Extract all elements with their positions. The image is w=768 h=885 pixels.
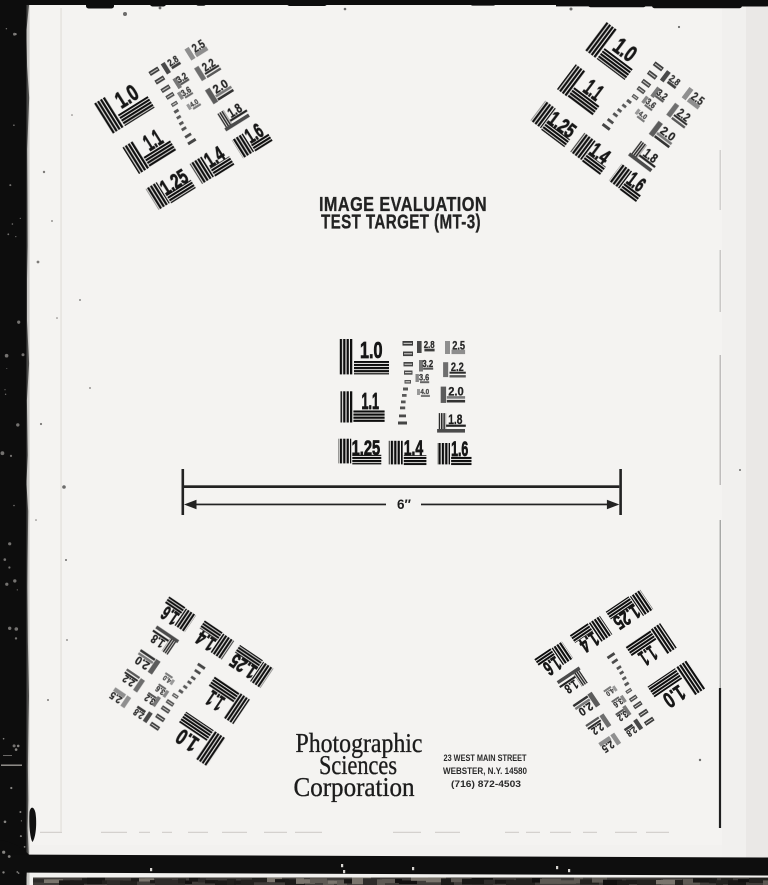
svg-text:23 WEST MAIN STREET: 23 WEST MAIN STREET (444, 753, 527, 764)
svg-text:Corporation: Corporation (294, 772, 415, 802)
svg-text:WEBSTER, N.Y. 14580: WEBSTER, N.Y. 14580 (443, 766, 527, 777)
svg-text:(716) 872-4503: (716) 872-4503 (451, 779, 521, 790)
svg-text:TEST TARGET (MT-3): TEST TARGET (MT-3) (321, 212, 481, 234)
svg-text:6″: 6″ (397, 497, 412, 512)
